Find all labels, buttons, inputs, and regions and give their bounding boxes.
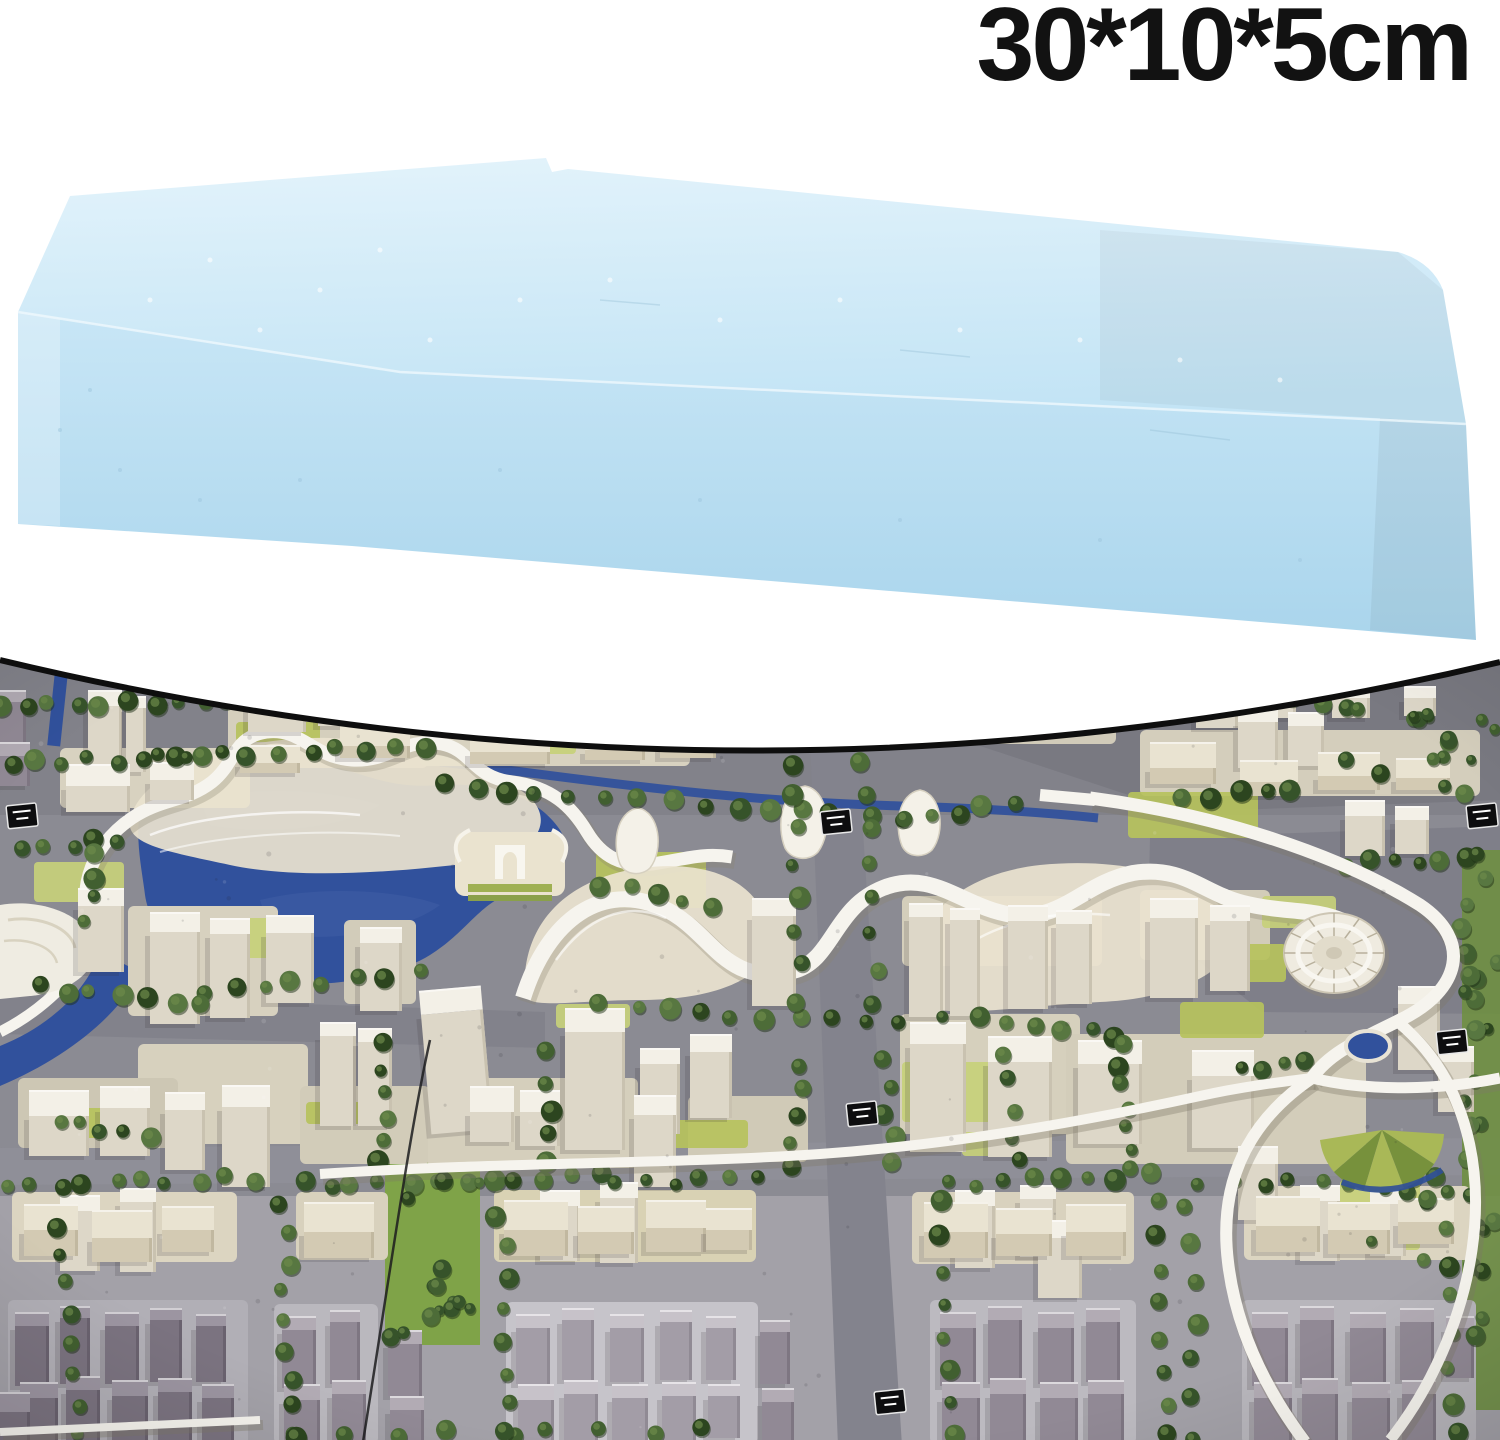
building xyxy=(631,686,670,722)
building xyxy=(990,678,1023,738)
building xyxy=(1047,682,1080,736)
building xyxy=(693,684,736,716)
foam-block xyxy=(18,158,1476,640)
building xyxy=(920,672,959,742)
scene-canvas xyxy=(0,0,1500,1440)
city-model-photo xyxy=(0,650,1500,1440)
size-label: 30*10*5cm xyxy=(977,0,1470,105)
building xyxy=(543,682,592,730)
product-listing-image: 30*10*5cm xyxy=(0,0,1500,1440)
building xyxy=(420,686,463,724)
